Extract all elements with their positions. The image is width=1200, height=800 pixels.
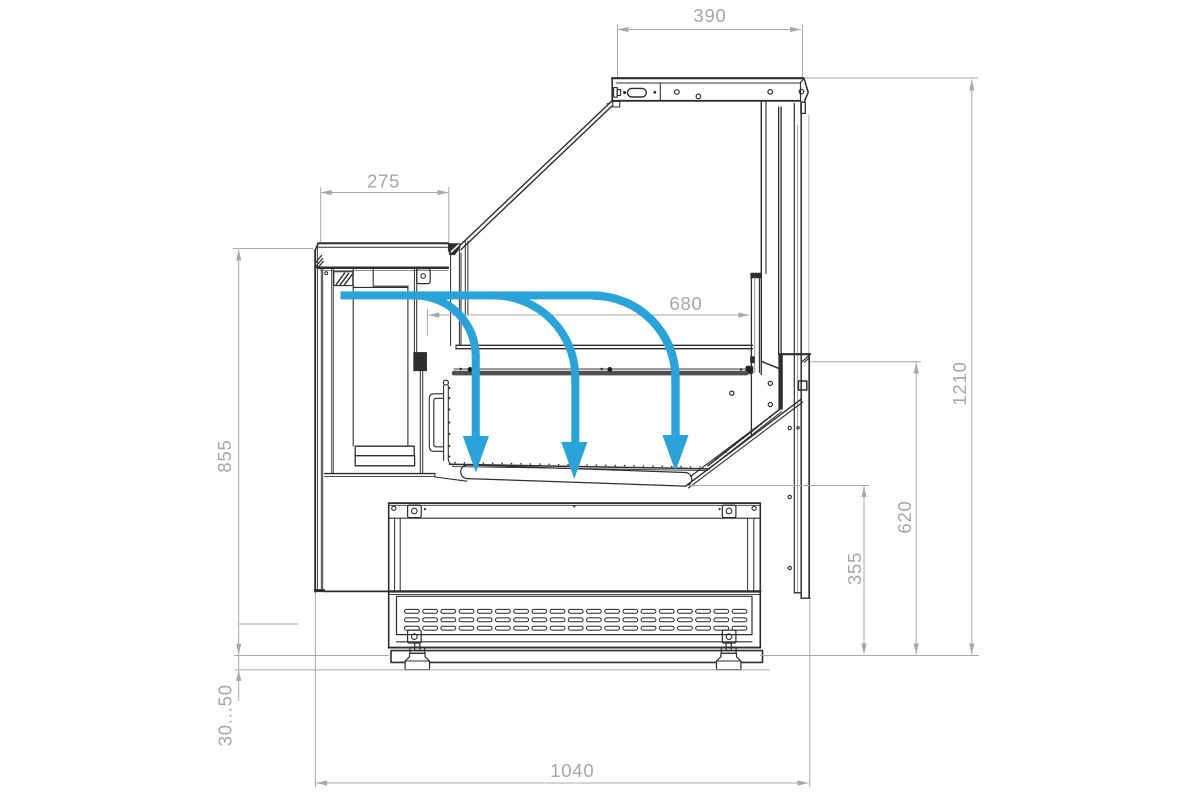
svg-text:680: 680 bbox=[669, 293, 702, 314]
svg-text:30...50: 30...50 bbox=[214, 684, 235, 746]
svg-text:390: 390 bbox=[693, 5, 726, 26]
svg-text:855: 855 bbox=[214, 439, 235, 472]
svg-text:1210: 1210 bbox=[949, 361, 970, 405]
svg-text:355: 355 bbox=[844, 552, 865, 585]
svg-text:275: 275 bbox=[367, 170, 400, 191]
svg-text:1040: 1040 bbox=[550, 760, 594, 781]
svg-text:620: 620 bbox=[894, 500, 915, 533]
